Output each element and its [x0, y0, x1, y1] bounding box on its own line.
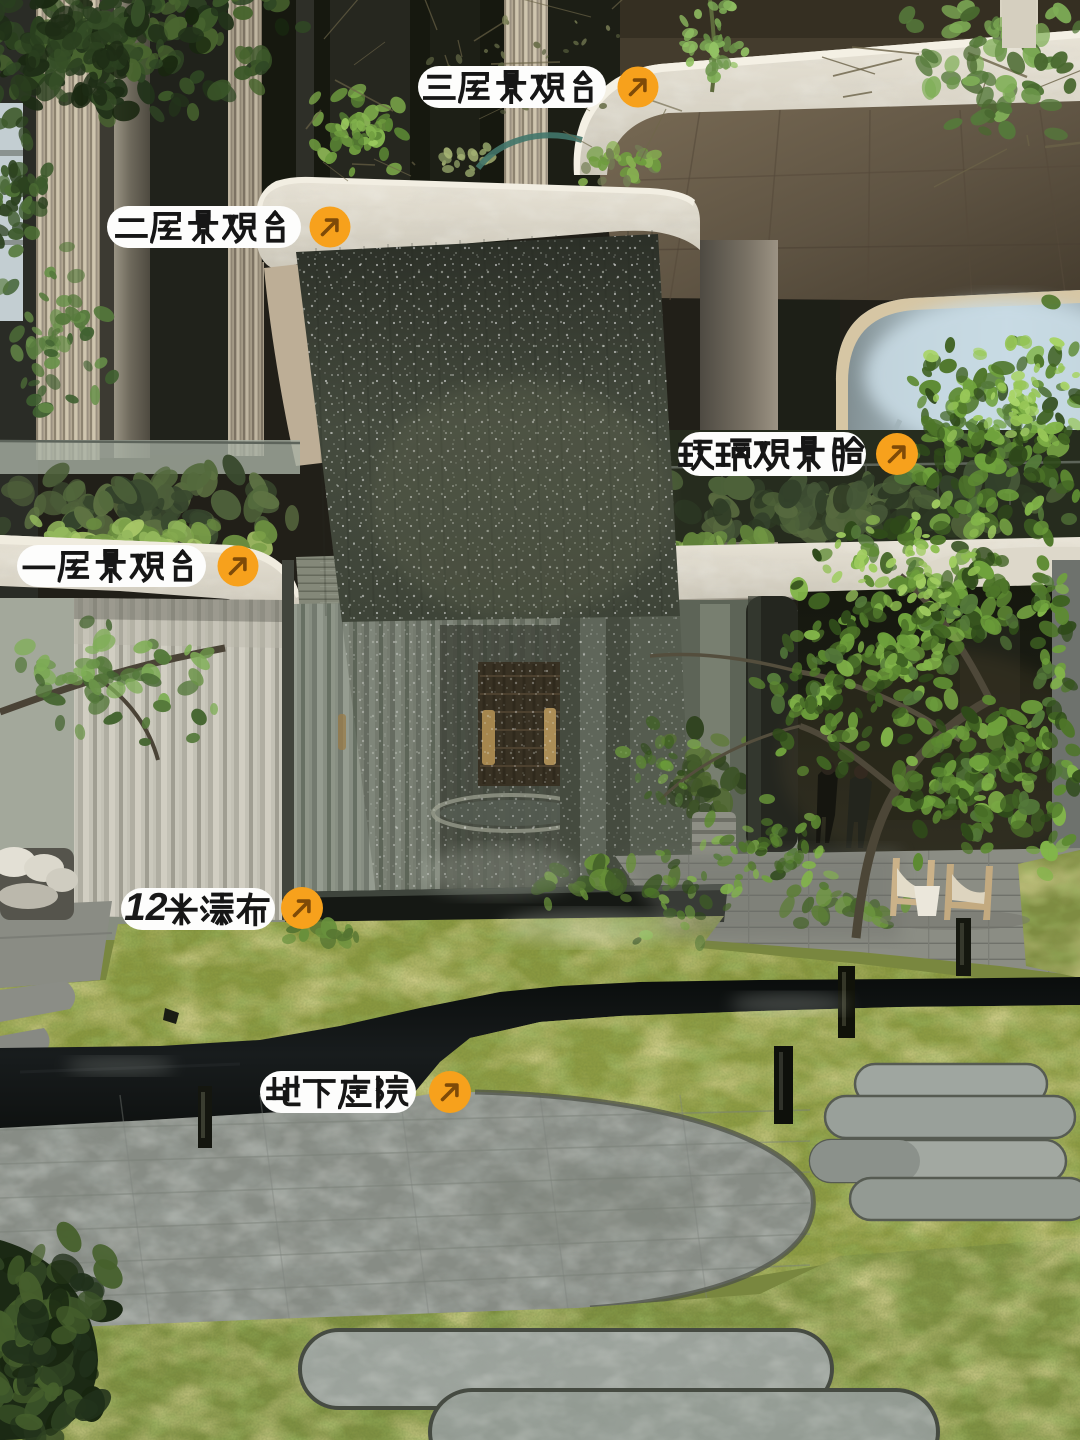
svg-text:12: 12 — [124, 886, 168, 929]
